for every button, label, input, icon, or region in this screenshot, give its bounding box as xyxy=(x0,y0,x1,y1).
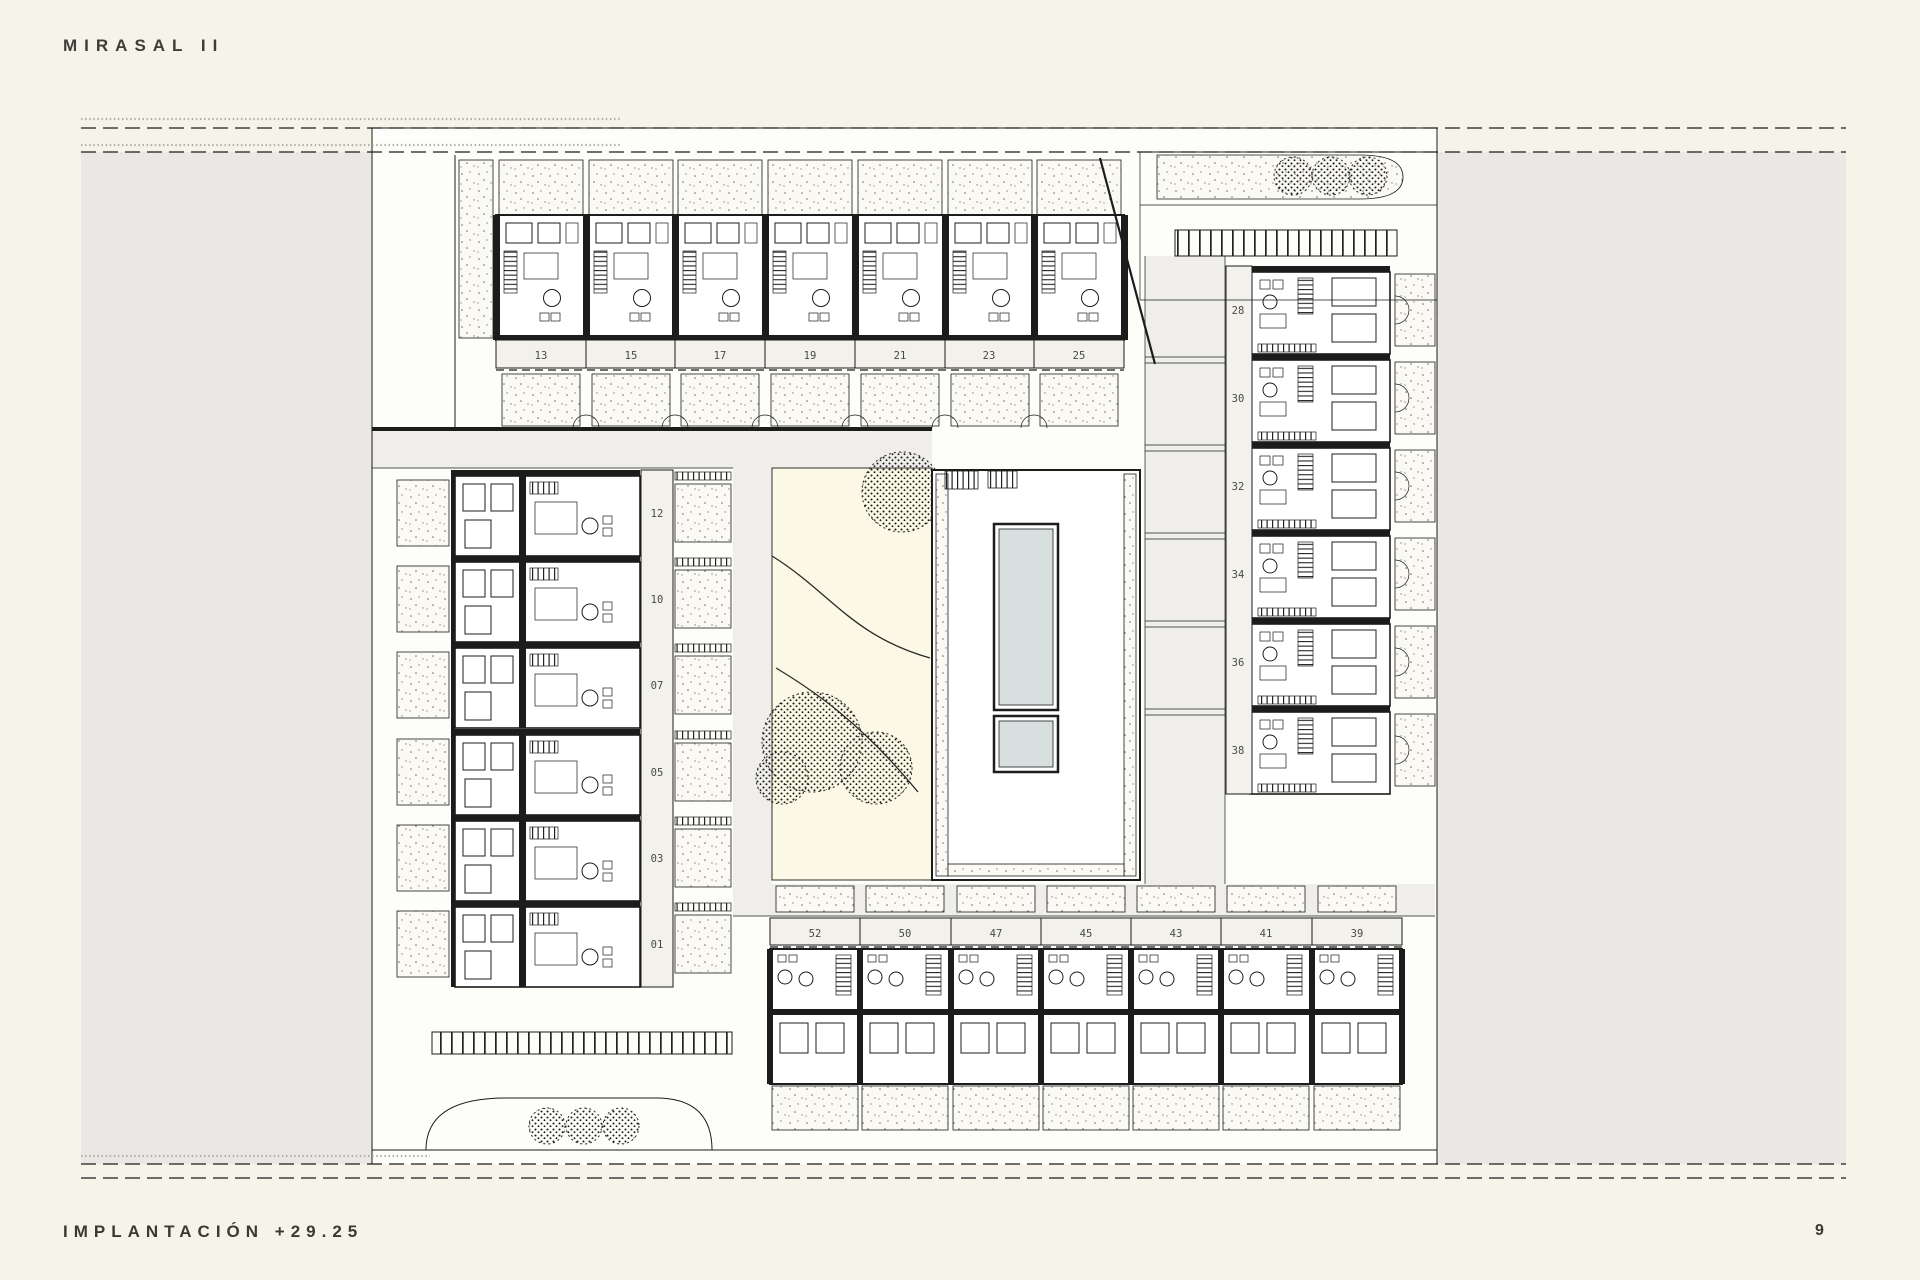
tree-icon xyxy=(566,1108,602,1144)
tree-icon xyxy=(1349,157,1387,195)
unit-number-label: 21 xyxy=(894,350,907,362)
tree-icon xyxy=(529,1108,565,1144)
unit-number-label: 17 xyxy=(714,350,727,362)
bottom-walkway-panels xyxy=(776,886,1396,912)
unit-number-label: 36 xyxy=(1232,657,1245,669)
unit-number-label: 45 xyxy=(1080,928,1093,940)
bottom-row-number-band: 52 50 47 45 43 41 39 xyxy=(770,918,1402,947)
unit-number-label: 30 xyxy=(1232,393,1245,405)
unit-number-label: 50 xyxy=(899,928,912,940)
swimming-pool-kids xyxy=(999,721,1053,767)
project-title: MIRASAL II xyxy=(63,36,224,56)
unit-number-label: 01 xyxy=(651,939,664,951)
tree-icon xyxy=(756,752,808,804)
tree-icon xyxy=(840,732,912,804)
unit-number-label: 23 xyxy=(983,350,996,362)
unit-number-label: 05 xyxy=(651,767,664,779)
tree-icon xyxy=(603,1108,639,1144)
unit-number-label: 34 xyxy=(1232,569,1245,581)
unit-number-label: 32 xyxy=(1232,481,1245,493)
unit-number-label: 15 xyxy=(625,350,638,362)
unit-number-label: 41 xyxy=(1260,928,1273,940)
pergola-deck xyxy=(945,471,978,489)
unit-number-label: 52 xyxy=(809,928,822,940)
unit-number-label: 47 xyxy=(990,928,1003,940)
unit-number-label: 12 xyxy=(651,508,664,520)
tree-icon xyxy=(862,452,942,532)
unit-number-label: 25 xyxy=(1073,350,1086,362)
pool-building xyxy=(932,470,1140,880)
parking-stalls xyxy=(1175,230,1397,256)
top-row-number-band: 13 15 17 19 21 23 25 xyxy=(496,340,1124,370)
tree-icon xyxy=(1312,157,1350,195)
unit-number-label: 07 xyxy=(651,680,664,692)
unit-number-label: 13 xyxy=(535,350,548,362)
drawing-sheet: 13 15 17 19 21 23 25 xyxy=(0,0,1920,1280)
unit-number-label: 19 xyxy=(804,350,817,362)
tree-icon xyxy=(1274,157,1312,195)
grey-field-left xyxy=(81,152,372,1164)
swimming-pool-main xyxy=(999,529,1053,705)
central-garden xyxy=(756,452,942,880)
grey-field-right xyxy=(1437,152,1846,1164)
unit-number-label: 03 xyxy=(651,853,664,865)
unit-number-label: 10 xyxy=(651,594,664,606)
unit-number-label: 43 xyxy=(1170,928,1183,940)
right-column-number-strip: 28 30 32 34 36 38 xyxy=(1226,266,1252,794)
page-number: 9 xyxy=(1815,1222,1826,1240)
pergola-deck xyxy=(988,471,1017,488)
site-plan-drawing: 13 15 17 19 21 23 25 xyxy=(0,0,1920,1280)
unit-number-label: 39 xyxy=(1351,928,1364,940)
unit-number-label: 28 xyxy=(1232,305,1245,317)
sheet-caption: IMPLANTACIÓN +29.25 xyxy=(63,1222,363,1242)
bottom-row-wing: 52 50 47 45 43 41 39 xyxy=(767,886,1405,1130)
left-column-number-strip: 12 10 07 05 03 01 xyxy=(641,470,673,987)
parking-stalls xyxy=(432,1032,732,1054)
unit-number-label: 38 xyxy=(1232,745,1245,757)
